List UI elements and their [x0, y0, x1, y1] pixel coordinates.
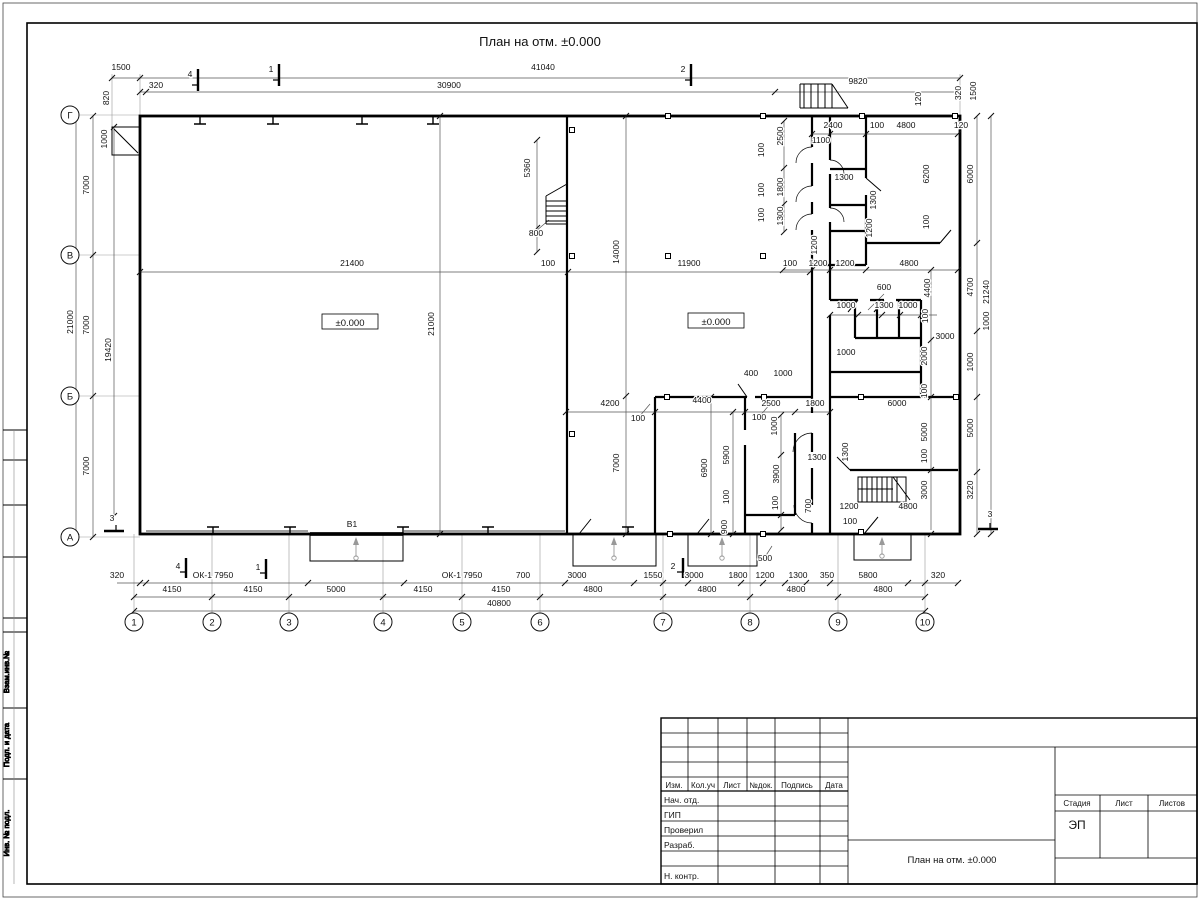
elevation-label: ±0.000 — [702, 317, 731, 328]
dim-label: 3 — [110, 513, 115, 523]
dim-label: 320 — [953, 86, 963, 100]
dim-label: 1000 — [899, 300, 918, 310]
tb-list2: Лист — [1115, 799, 1133, 808]
dim-label: 100 — [756, 143, 766, 157]
dim-label: 4400 — [693, 395, 712, 405]
tb-listov: Листов — [1159, 799, 1185, 808]
dim-label: 1200 — [840, 501, 859, 511]
sheet-frame — [3, 3, 1197, 897]
dim-label: 21000 — [65, 310, 75, 334]
dim-label: 9820 — [849, 76, 868, 86]
dim-label: В1 — [347, 519, 358, 529]
dim-label: 3000 — [685, 570, 704, 580]
interior-stairs-icon — [546, 184, 567, 224]
dim-label: 100 — [843, 516, 857, 526]
dim-label: 4700 — [965, 277, 975, 296]
tb-ndok: №док. — [749, 781, 772, 790]
axis-bubbles: ГВБА12345678910 — [61, 106, 934, 631]
dim-label: 2400 — [824, 120, 843, 130]
dim-label: 5000 — [327, 584, 346, 594]
axis-bubble-label: А — [67, 533, 74, 544]
dim-label: 5360 — [522, 158, 532, 177]
axis-bubble-label: 2 — [209, 618, 214, 629]
dim-label: 100 — [783, 258, 797, 268]
dim-label: 4150 — [492, 584, 511, 594]
floor-plan-svg: Взам.инв.№ Подп. и дата Инв. № подл. Изм… — [0, 0, 1200, 900]
dim-label: 21400 — [340, 258, 364, 268]
entry-porch-left — [112, 127, 140, 155]
dim-label: 1000 — [99, 129, 109, 148]
tb-razrab: Разраб. — [664, 840, 695, 850]
dim-label: 4800 — [698, 584, 717, 594]
axis-bubble-label: 3 — [286, 618, 291, 629]
dim-label: 4800 — [899, 501, 918, 511]
dim-label: ОК-1 7950 — [193, 570, 234, 580]
dim-label: 900 — [719, 520, 729, 534]
dim-label: 700 — [516, 570, 530, 580]
tb-gip: ГИП — [664, 810, 681, 820]
tb-list: Лист — [723, 781, 741, 790]
dim-label: 2000 — [919, 346, 929, 365]
dim-label: 1000 — [981, 311, 991, 330]
dim-label: 100 — [541, 258, 555, 268]
tb-podpis: Подпись — [781, 781, 813, 790]
dim-label: 7000 — [611, 453, 621, 472]
elevation-marks: ±0.000±0.000 — [322, 313, 744, 329]
dim-label: 1000 — [837, 300, 856, 310]
axis-bubble-label: В — [67, 251, 73, 262]
dim-label: 700 — [803, 499, 813, 513]
dim-label: 100 — [919, 449, 929, 463]
dim-label: 1800 — [729, 570, 748, 580]
side-stamp: Взам.инв.№ Подп. и дата Инв. № подл. — [2, 430, 27, 884]
dim-label: 4800 — [897, 120, 916, 130]
page-title: План на отм. ±0.000 — [479, 34, 601, 49]
tb-stage-value: ЭП — [1068, 818, 1085, 832]
dim-label: 100 — [921, 215, 931, 229]
axis-bubble-label: 4 — [380, 618, 385, 629]
dim-label: 1200 — [809, 258, 828, 268]
dim-label: 820 — [101, 91, 111, 105]
tb-izm: Изм. — [665, 781, 682, 790]
dim-label: 1100 — [812, 135, 831, 145]
porches — [310, 534, 911, 566]
dim-label: 14000 — [611, 240, 621, 264]
dim-label: 41040 — [531, 62, 555, 72]
dim-label: 100 — [919, 384, 929, 398]
dim-label: 1800 — [806, 398, 825, 408]
dim-label: 350 — [820, 570, 834, 580]
axis-lines — [79, 74, 960, 613]
stamp-podp: Подп. и дата — [2, 722, 11, 767]
tb-stadia: Стадия — [1063, 799, 1090, 808]
dim-label: 1300 — [868, 190, 878, 209]
dim-label: 6000 — [888, 398, 907, 408]
dim-label: 1300 — [775, 206, 785, 225]
dim-label: 5800 — [859, 570, 878, 580]
dimension-labels: 1500410403203090098204128201203201500100… — [65, 62, 993, 608]
dim-label: 100 — [870, 120, 884, 130]
stairs-bottom-right-icon — [858, 477, 910, 502]
dim-label: 3900 — [771, 464, 781, 483]
tb-koluch: Кол.уч — [691, 781, 715, 790]
dim-label: 4800 — [787, 584, 806, 594]
dim-label: 4 — [188, 69, 193, 79]
dim-label: 1000 — [769, 416, 779, 435]
axis-bubble-label: Г — [67, 111, 72, 122]
dim-label: 100 — [770, 496, 780, 510]
dim-label: 7000 — [81, 315, 91, 334]
dim-label: 1200 — [864, 218, 874, 237]
exterior-stairs-top-icon — [800, 84, 848, 108]
dim-label: 1550 — [644, 570, 663, 580]
dim-label: 100 — [756, 208, 766, 222]
dim-label: 320 — [149, 80, 163, 90]
dim-label: 21000 — [426, 312, 436, 336]
dim-label: 1800 — [775, 177, 785, 196]
dim-label: 100 — [752, 412, 766, 422]
dim-label: 320 — [110, 570, 124, 580]
dim-label: 1500 — [112, 62, 131, 72]
dim-label: 1300 — [835, 172, 854, 182]
tb-n-kontr: Н. контр. — [664, 871, 699, 881]
tb-proveril: Проверил — [664, 825, 703, 835]
dim-label: 30900 — [437, 80, 461, 90]
dim-label: 400 — [744, 368, 758, 378]
dim-label: 100 — [920, 309, 930, 323]
dim-label: 120 — [913, 92, 923, 106]
dim-label: 3220 — [965, 480, 975, 499]
dim-label: 7000 — [81, 456, 91, 475]
dim-label: 100 — [756, 183, 766, 197]
thin-construction — [112, 84, 951, 566]
dim-label: 11900 — [677, 258, 700, 268]
elevation-label: ±0.000 — [336, 318, 365, 329]
dim-label: 4800 — [900, 258, 919, 268]
dim-label: 3 — [988, 509, 993, 519]
dim-label: 4150 — [163, 584, 182, 594]
dim-label: 1 — [269, 64, 274, 74]
dim-label: 1300 — [808, 452, 827, 462]
dim-label: 6200 — [921, 164, 931, 183]
dim-label: 3000 — [919, 480, 929, 499]
dim-label: 2500 — [762, 398, 781, 408]
dim-label: 4150 — [244, 584, 263, 594]
dim-label: 7000 — [81, 175, 91, 194]
dim-label: 4800 — [584, 584, 603, 594]
dim-label: 6900 — [699, 458, 709, 477]
dim-label: 1300 — [789, 570, 808, 580]
dim-label: 6000 — [965, 164, 975, 183]
stamp-inv: Инв. № подл. — [2, 810, 11, 857]
dim-label: 3000 — [568, 570, 587, 580]
dim-label: 1500 — [968, 81, 978, 100]
dim-label: 1300 — [840, 442, 850, 461]
dim-label: 1000 — [774, 368, 793, 378]
axis-bubble-label: 8 — [747, 618, 752, 629]
axis-bubble-label: 6 — [537, 618, 542, 629]
dim-label: 3000 — [936, 331, 955, 341]
dim-label: 100 — [721, 490, 731, 504]
dim-label: 4150 — [414, 584, 433, 594]
tb-nach-otd: Нач. отд. — [664, 795, 699, 805]
dim-label: 4200 — [601, 398, 620, 408]
dim-label: 500 — [758, 553, 772, 563]
dim-label: 21240 — [981, 280, 991, 304]
dim-label: 5900 — [721, 445, 731, 464]
drawing-sheet: Взам.инв.№ Подп. и дата Инв. № подл. Изм… — [0, 0, 1200, 900]
dim-label: 40800 — [487, 598, 511, 608]
dim-label: 1200 — [809, 235, 819, 254]
dim-label: 1200 — [836, 258, 855, 268]
dim-label: 5000 — [919, 422, 929, 441]
axis-bubble-label: 10 — [920, 618, 931, 629]
dim-label: ОК-1 7950 — [442, 570, 483, 580]
entry-arrows — [353, 537, 885, 560]
dim-label: 600 — [877, 282, 891, 292]
tb-data: Дата — [825, 781, 843, 790]
column-marks — [570, 114, 959, 537]
axis-bubble-label: 5 — [459, 618, 464, 629]
dim-label: 19420 — [103, 338, 113, 362]
dim-label: 1200 — [756, 570, 775, 580]
dim-label: 2 — [681, 64, 686, 74]
axis-bubble-label: 7 — [660, 618, 665, 629]
stamp-vzam: Взам.инв.№ — [2, 651, 11, 693]
dim-label: 1000 — [837, 347, 856, 357]
door-arcs — [793, 147, 844, 523]
title-block: Изм. Кол.уч Лист №док. Подпись Дата Нач.… — [661, 718, 1197, 884]
dim-label: 5000 — [965, 418, 975, 437]
axis-bubble-label: Б — [67, 392, 73, 403]
dim-label: 800 — [529, 228, 543, 238]
tb-drawing-name: План на отм. ±0.000 — [908, 855, 997, 866]
dim-label: 2500 — [775, 126, 785, 145]
axis-bubble-label: 9 — [835, 618, 840, 629]
dim-label: 2 — [671, 561, 676, 571]
dim-label: 320 — [931, 570, 945, 580]
dim-label: 120 — [954, 120, 968, 130]
dim-label: 4400 — [922, 278, 932, 297]
dim-label: 4800 — [874, 584, 893, 594]
dim-label: 100 — [631, 413, 645, 423]
axis-bubble-label: 1 — [131, 618, 136, 629]
dim-label: 1000 — [965, 352, 975, 371]
dim-label: 1 — [256, 562, 261, 572]
dim-label: 1300 — [875, 300, 894, 310]
dim-label: 4 — [176, 561, 181, 571]
